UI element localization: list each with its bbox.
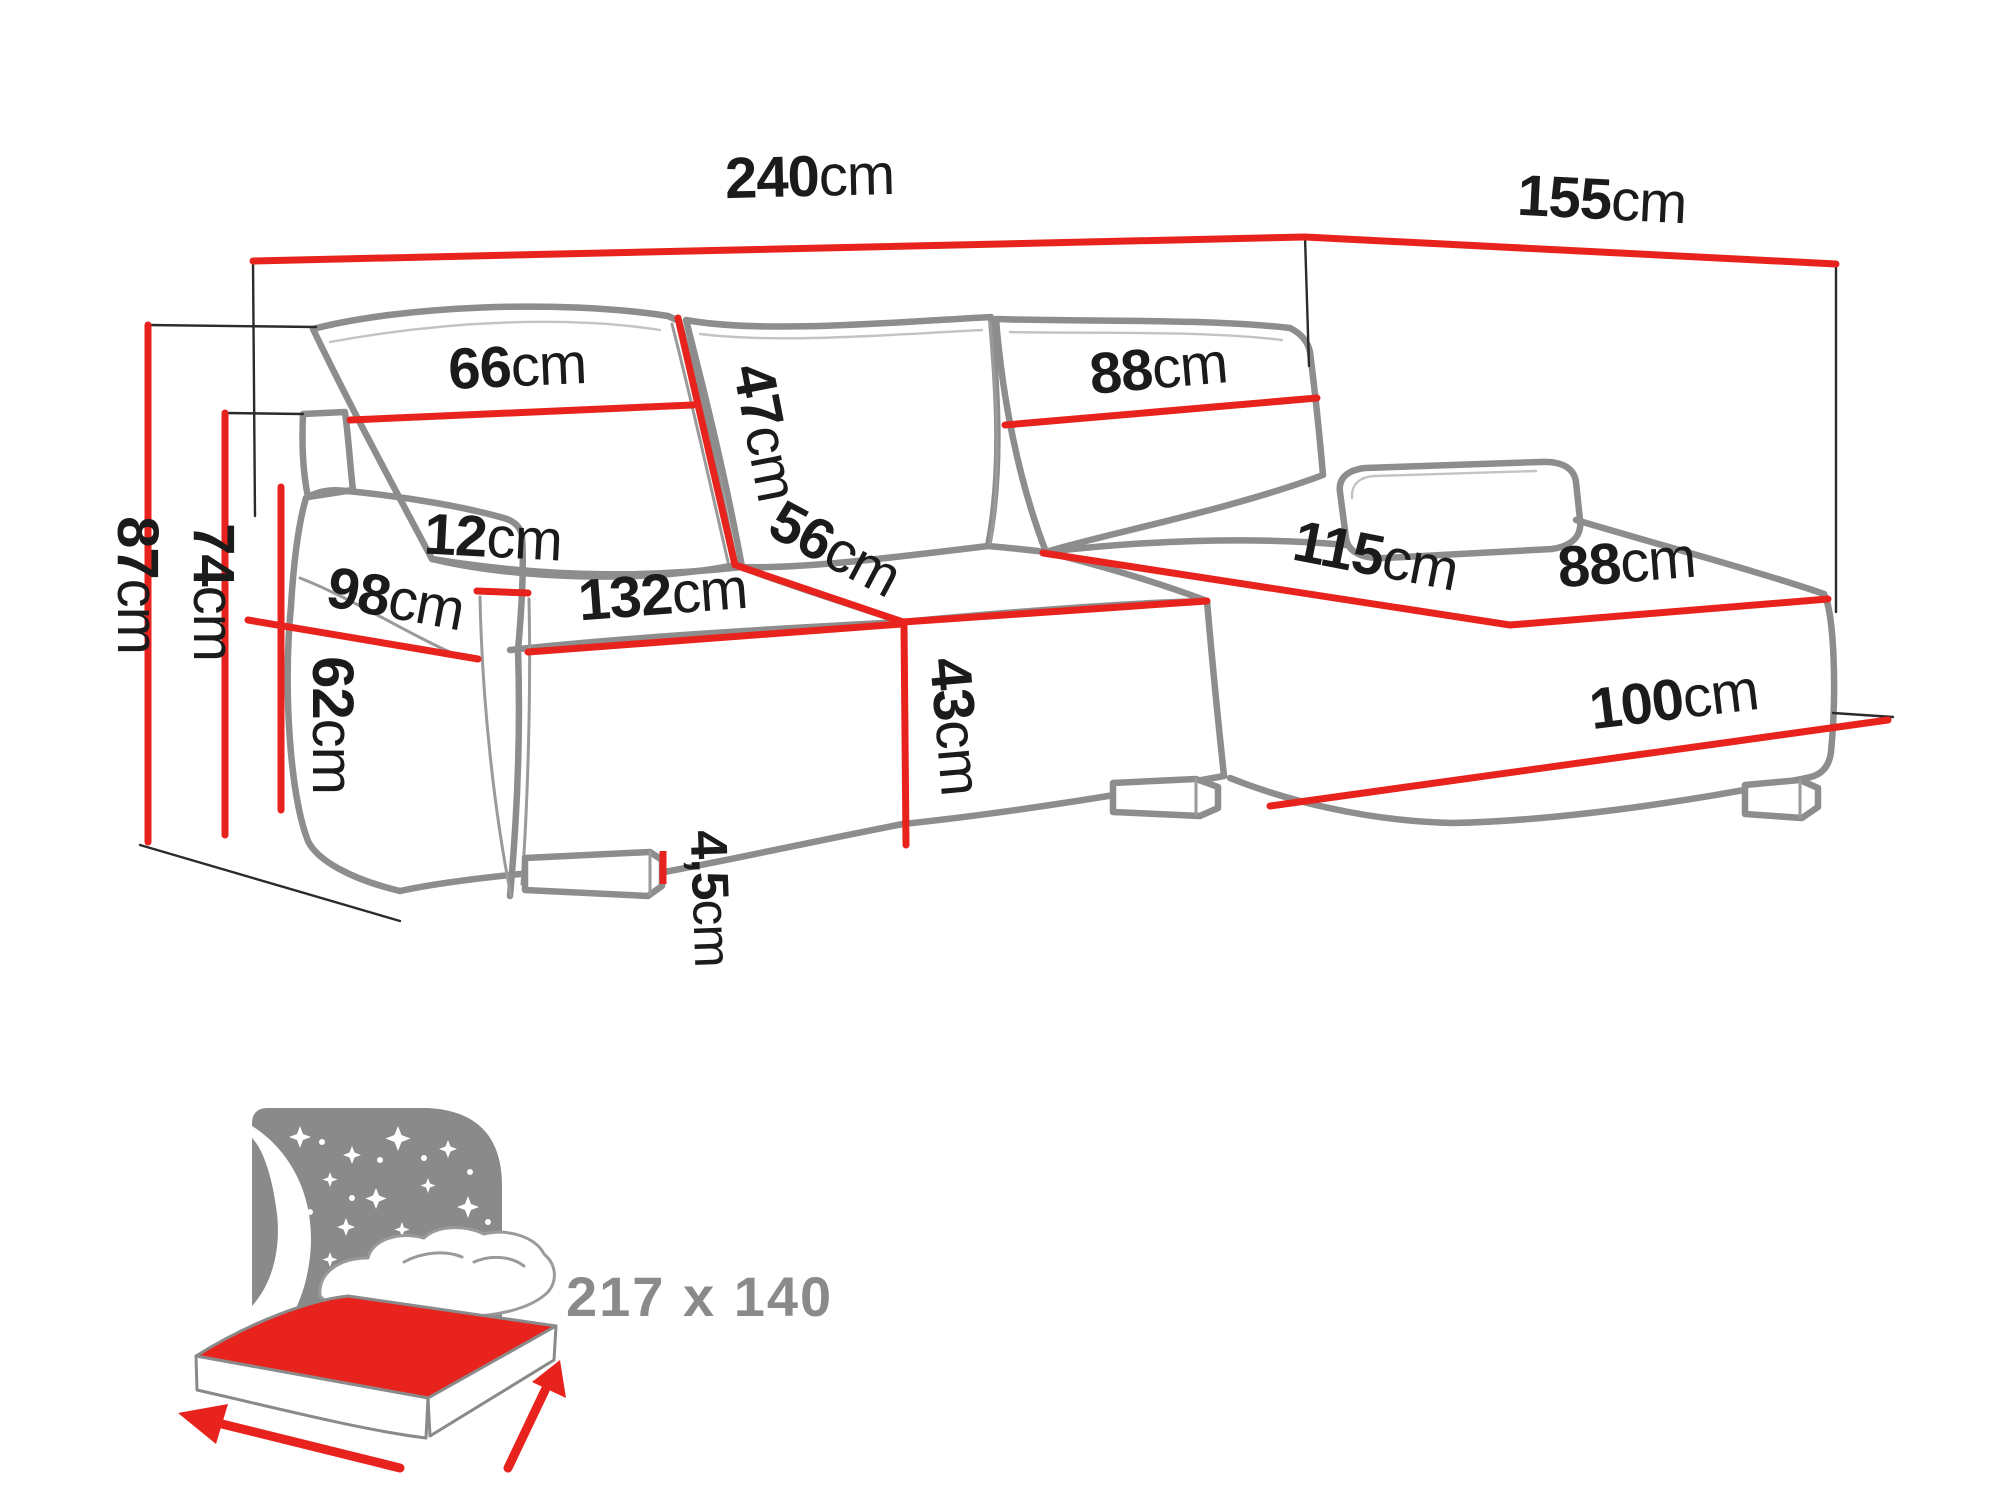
tick-100-end xyxy=(1833,713,1893,717)
base-bottom-edge-left xyxy=(400,874,520,891)
dim-line-12 xyxy=(477,591,528,593)
dim-label-74: 74cm xyxy=(181,523,246,661)
dim-line-155 xyxy=(1305,237,1836,264)
sofa-dimension-diagram: 240cm 155cm 87cm 74cm 62cm 66cm 47cm xyxy=(0,0,2000,1500)
bed-size-label: 217 x 140 xyxy=(566,1265,833,1328)
tick-heights-bottom xyxy=(140,845,400,921)
dim-label-87: 87cm xyxy=(105,516,170,654)
dimension-total-height: 87cm xyxy=(105,325,170,842)
chaise-foot xyxy=(1745,780,1818,818)
dim-line-88-chaise xyxy=(1510,599,1828,625)
left-armrest-inner-strip-a xyxy=(480,597,511,896)
dimension-backrest-height: 74cm xyxy=(181,413,246,835)
dim-label-132: 132cm xyxy=(576,556,750,633)
diagram-canvas: 240cm 155cm 87cm 74cm 62cm 66cm 47cm xyxy=(0,0,2000,1500)
dimension-total-depth: 155cm xyxy=(1305,163,1836,264)
left-armrest-inner-front xyxy=(510,650,519,896)
dim-label-62: 62cm xyxy=(300,656,365,794)
tick-74-top xyxy=(225,413,303,414)
dim-label-66: 66cm xyxy=(447,331,588,402)
ext-240-left xyxy=(253,261,255,516)
dim-label-240: 240cm xyxy=(724,142,895,211)
dim-line-43 xyxy=(904,624,906,845)
back-frame-left xyxy=(303,412,353,497)
tick-87-top xyxy=(148,325,316,327)
dim-line-240 xyxy=(253,237,1305,261)
front-right-foot xyxy=(1113,779,1218,816)
dim-label-155: 155cm xyxy=(1516,163,1688,236)
left-armrest-inner-strip-b xyxy=(522,599,530,884)
dimension-chaise-width: 88cm xyxy=(1510,525,1828,625)
front-left-foot xyxy=(525,852,662,896)
seat-back-boundary-right xyxy=(988,546,1046,552)
front-right-corner-edge xyxy=(1207,601,1224,776)
dimension-leg-height: 4,5cm xyxy=(663,829,741,968)
dimensions: 240cm 155cm 87cm 74cm 62cm 66cm 47cm xyxy=(105,142,1888,968)
dim-label-4-5: 4,5cm xyxy=(679,829,742,968)
dim-label-43: 43cm xyxy=(917,655,994,798)
bed-length-arrow-shaft xyxy=(508,1384,548,1468)
dimension-total-width: 240cm xyxy=(253,142,1305,261)
dim-label-88-back: 88cm xyxy=(1087,330,1230,407)
dim-label-12: 12cm xyxy=(422,501,563,573)
dim-label-88-chaise: 88cm xyxy=(1555,525,1698,601)
dim-label-100: 100cm xyxy=(1586,657,1762,742)
sleeping-function-icon: 217 x 140 xyxy=(178,1108,833,1468)
seat-front-edge-line xyxy=(903,601,1207,622)
bed-width-arrow-head xyxy=(178,1404,228,1444)
